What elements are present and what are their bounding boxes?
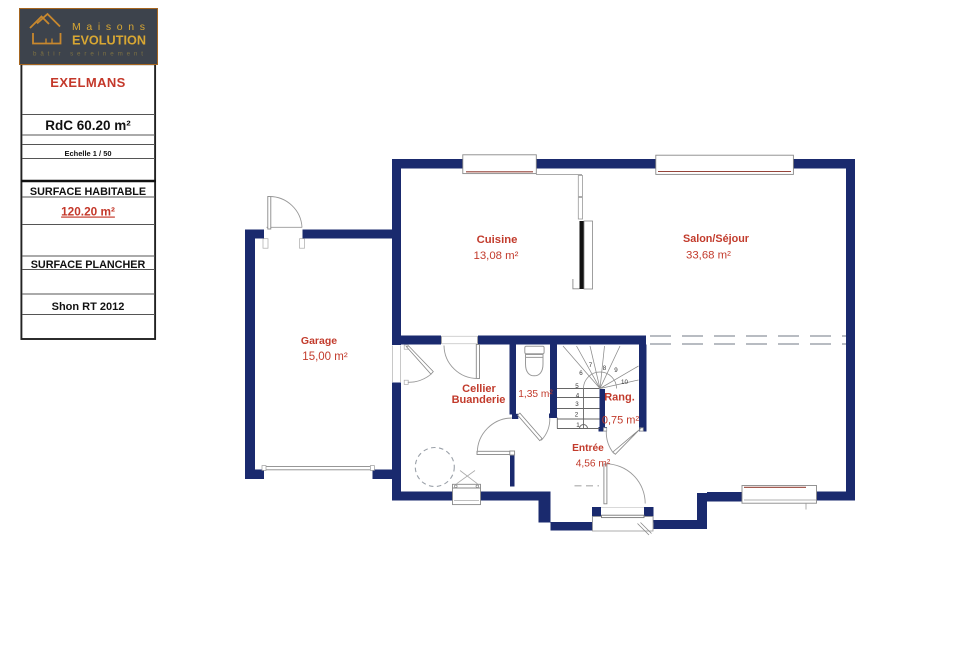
svg-text:Cuisine: Cuisine [477,234,518,246]
svg-text:SURFACE HABITABLE: SURFACE HABITABLE [30,186,146,198]
svg-text:Maisons: Maisons [72,21,145,33]
svg-text:Garage: Garage [301,335,337,347]
svg-text:15,00 m²: 15,00 m² [302,351,348,363]
svg-text:13,08 m²: 13,08 m² [474,250,519,262]
svg-text:Echelle 1 / 50: Echelle 1 / 50 [64,149,111,158]
svg-text:1: 1 [576,422,580,429]
svg-text:8: 8 [603,365,607,372]
svg-text:Buanderie: Buanderie [452,394,506,406]
svg-text:33,68 m²: 33,68 m² [686,250,731,262]
svg-text:2: 2 [575,412,579,419]
svg-text:EVOLUTION: EVOLUTION [72,34,146,48]
svg-text:10: 10 [621,379,628,386]
svg-text:Salon/Séjour: Salon/Séjour [683,233,750,245]
svg-text:1,35 m²: 1,35 m² [518,389,553,400]
svg-text:6: 6 [579,370,583,377]
svg-text:120.20 m²: 120.20 m² [61,205,115,219]
svg-text:SURFACE PLANCHER: SURFACE PLANCHER [31,259,146,271]
svg-text:Entrée: Entrée [572,443,604,454]
svg-text:9: 9 [614,367,618,374]
svg-text:0,75 m²: 0,75 m² [602,415,640,427]
svg-text:3: 3 [575,401,579,408]
svg-text:5: 5 [575,383,579,390]
svg-text:4,56 m²: 4,56 m² [576,459,611,470]
svg-text:4: 4 [576,393,580,400]
svg-text:Shon RT 2012: Shon RT 2012 [52,301,125,313]
svg-text:Rang.: Rang. [604,392,635,404]
svg-text:bâtir sereinement: bâtir sereinement [33,51,143,58]
svg-text:EXELMANS: EXELMANS [50,75,125,90]
svg-text:7: 7 [589,362,593,369]
svg-text:RdC 60.20 m²: RdC 60.20 m² [45,118,131,133]
